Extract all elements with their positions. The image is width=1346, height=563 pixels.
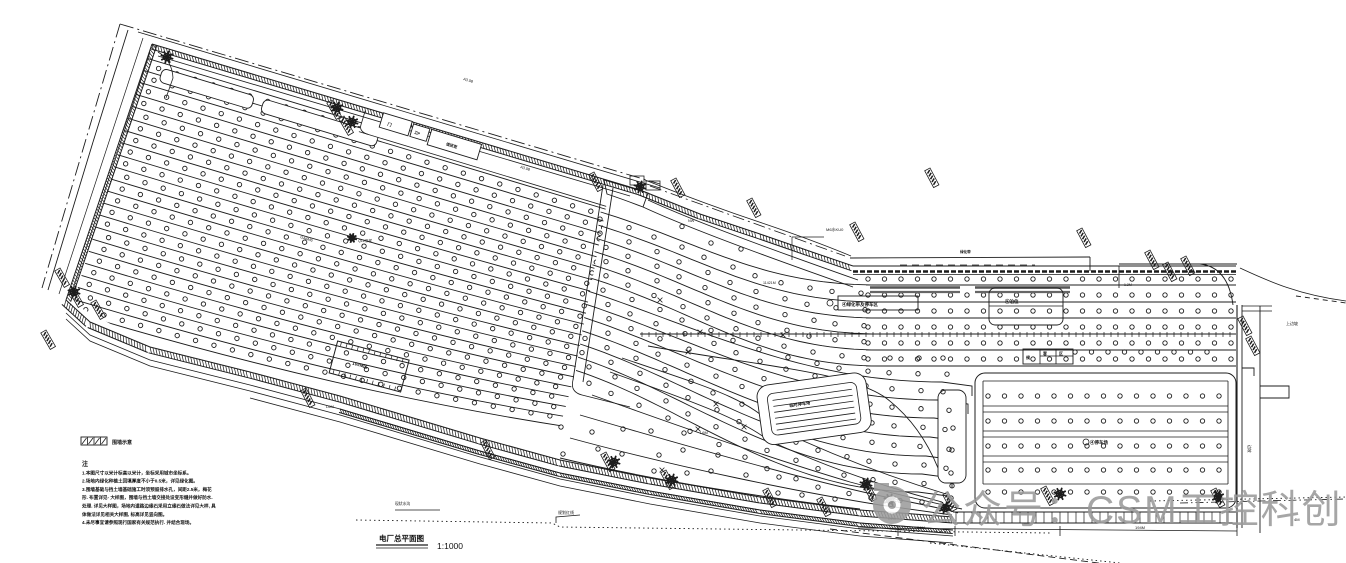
svg-text:2.场地内绿化种植土回填厚度不小于0.5米，详见绿化图。: 2.场地内绿化种植土回填厚度不小于0.5米，详见绿化图。 [82,478,198,485]
svg-text:现状水沟: 现状水沟 [395,501,410,506]
svg-text:客: 客 [1042,350,1047,356]
svg-text:1.本图尺寸以米计标高以米计，坐标采用城市坐标系。: 1.本图尺寸以米计标高以米计，坐标采用城市坐标系。 [82,469,192,476]
svg-text:电厂总平面图: 电厂总平面图 [379,533,424,543]
svg-text:L6M: L6M [326,404,334,409]
svg-text:A3.08: A3.08 [463,77,474,84]
svg-text:围墙示意: 围墙示意 [112,439,132,446]
svg-text:④绿化带及停车区: ④绿化带及停车区 [842,301,878,308]
svg-text:边坡: 边坡 [1247,445,1252,453]
svg-text:上边坡: 上边坡 [1286,320,1298,326]
svg-text:形. 布置详见- 大样图，围墙与挡土墙交接处设变形缝并做好防: 形. 布置详见- 大样图，围墙与挡土墙交接处设变形缝并做好防水. [82,494,213,501]
svg-text:④停车场: ④停车场 [1090,439,1108,446]
svg-text:注: 注 [82,460,88,468]
svg-text:NW: NW [688,219,695,223]
svg-text:3.围墙基础与挡土墙基础施工时须预留排水孔，间距2.5米，梅: 3.围墙基础与挡土墙基础施工时须预留排水孔，间距2.5米，梅花 [82,486,212,493]
svg-text:规划红线: 规划红线 [558,509,574,515]
svg-text:1:1000: 1:1000 [437,541,463,551]
svg-text:Q1#采样: Q1#采样 [358,238,372,243]
svg-text:11421M: 11421M [763,281,776,285]
svg-text:绿化带: 绿化带 [960,249,971,254]
svg-text:公众号：CSM工控科创: 公众号：CSM工控科创 [922,489,1343,532]
svg-text:M6水KU0: M6水KU0 [826,226,844,232]
svg-text:10#M区: 10#M区 [352,360,370,371]
svg-text:体做法详见相关大样图, 标高详见竖向图。: 体做法详见相关大样图, 标高详见竖向图。 [82,511,167,518]
svg-text:区: 区 [1059,350,1063,356]
svg-text:处理. 详见大样图，场地内道路边缘石采用立缘石做法详见大样,: 处理. 详见大样图，场地内道路边缘石采用立缘石做法详见大样, 具 [81,503,216,510]
svg-text:4.未尽事宜请参照现行国家有关规范执行. 并结合现场。: 4.未尽事宜请参照现行国家有关规范执行. 并结合现场。 [82,519,194,526]
svg-text:L6M: L6M [700,430,708,435]
svg-text:⑤泊位: ⑤泊位 [1005,298,1019,305]
svg-text:候: 候 [1026,354,1031,360]
